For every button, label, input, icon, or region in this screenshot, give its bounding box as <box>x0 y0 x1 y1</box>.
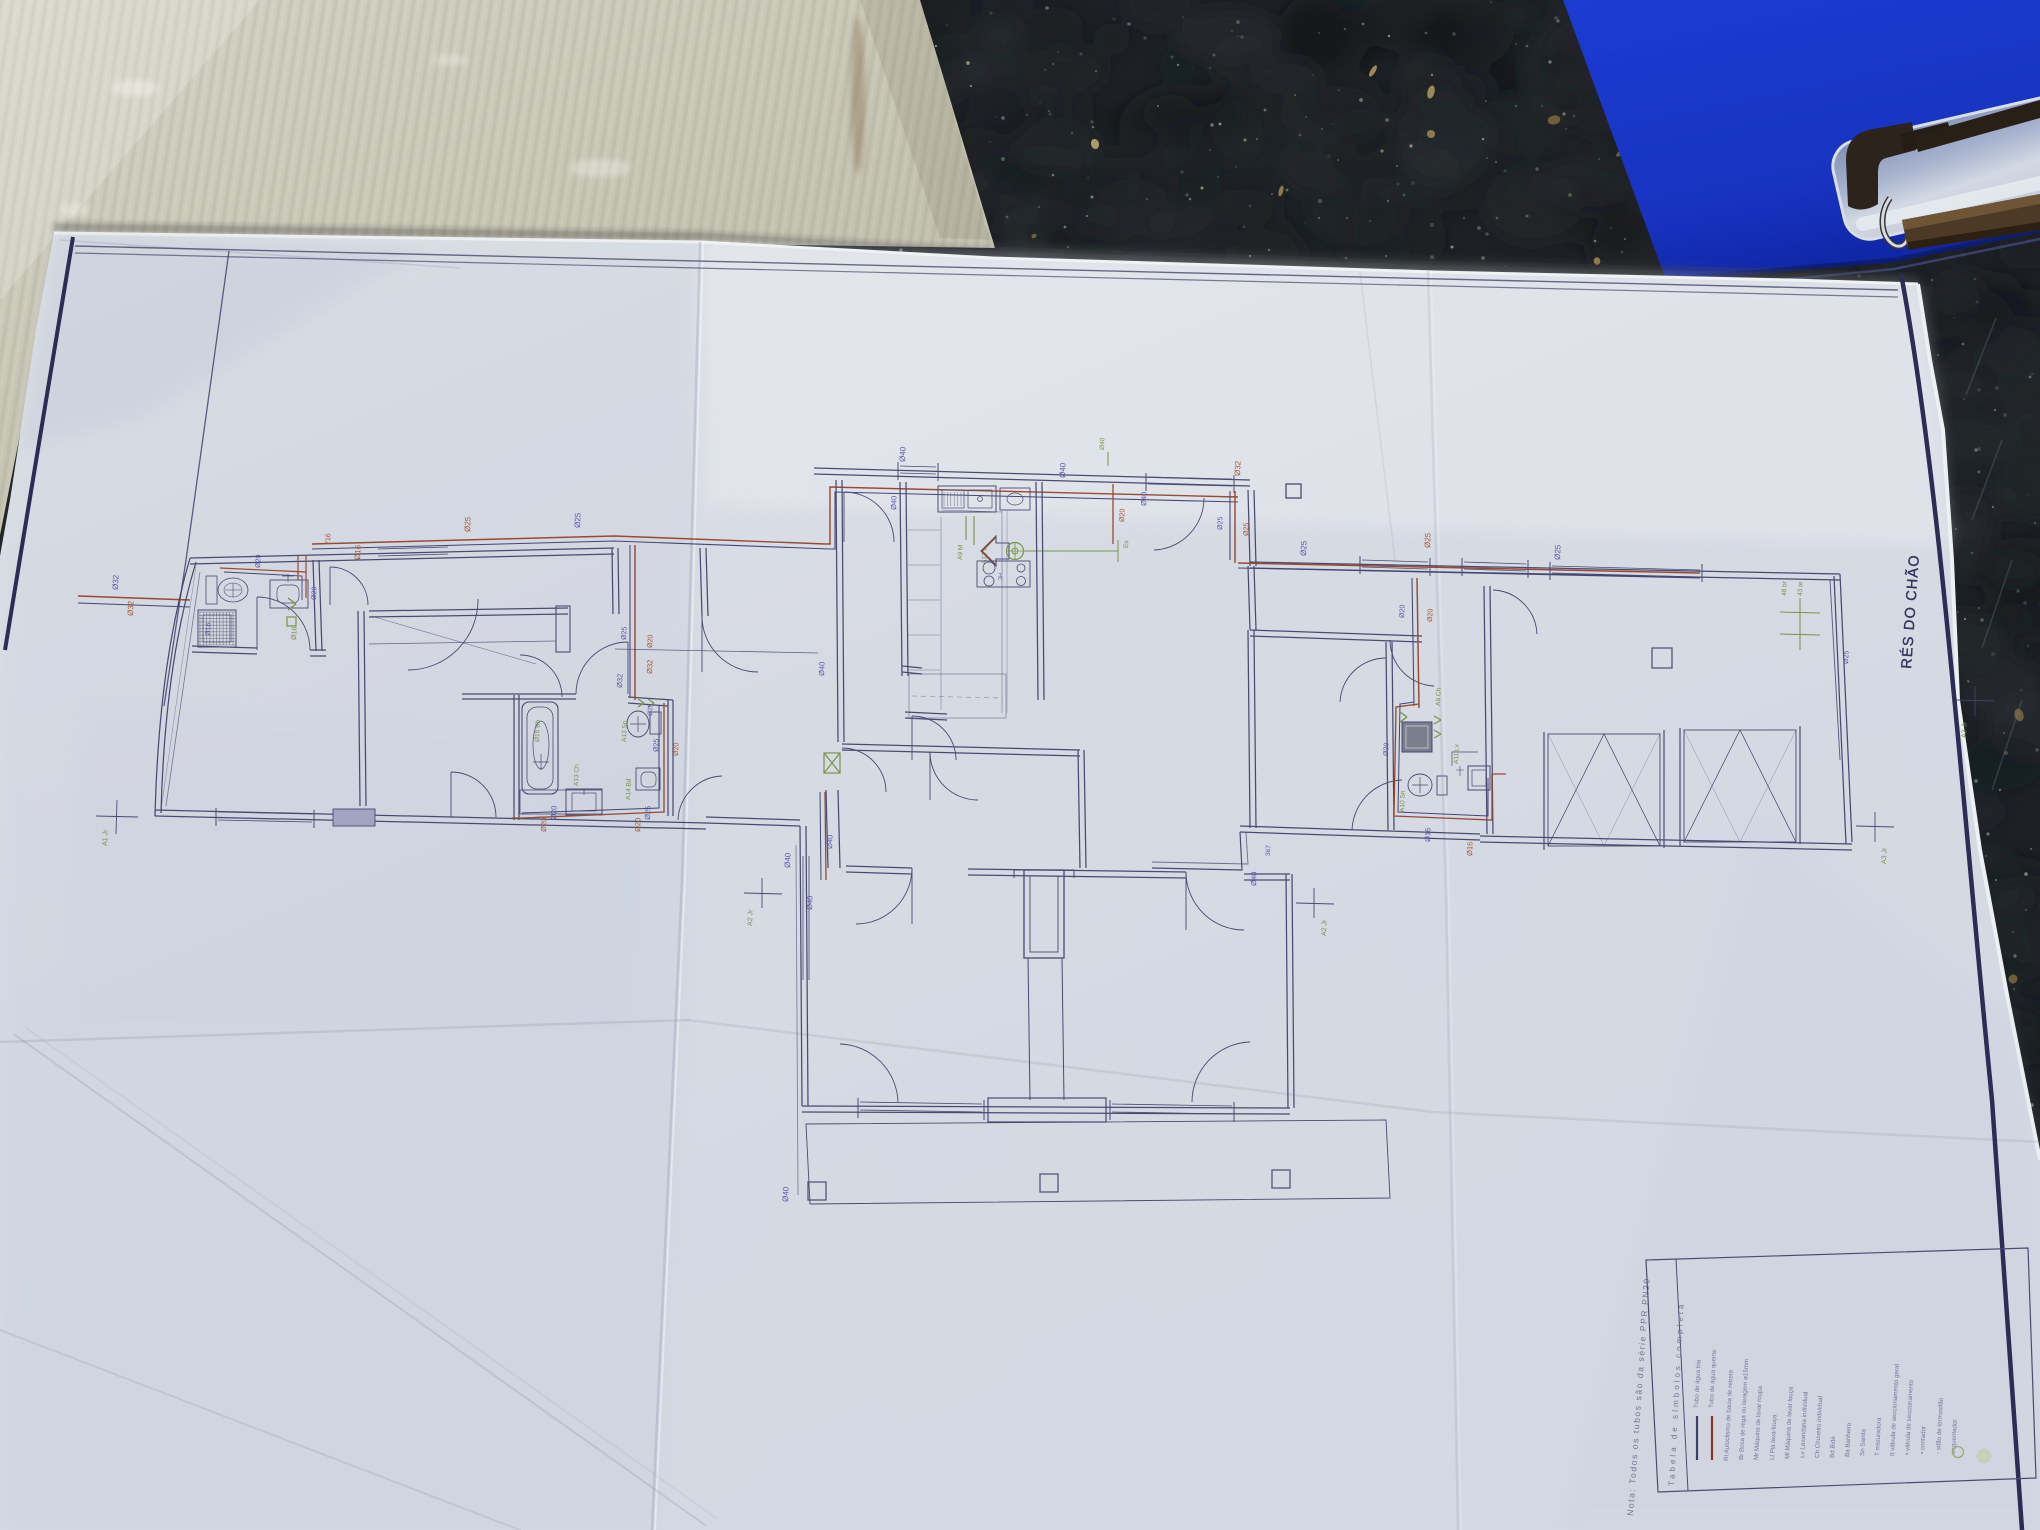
svg-text:Ø32: Ø32 <box>615 674 624 688</box>
svg-text:Ø40: Ø40 <box>805 896 814 910</box>
svg-text:Ø15 Bb: Ø15 Bb <box>534 719 542 742</box>
svg-text:Ø25: Ø25 <box>653 738 660 752</box>
svg-text:Ø20: Ø20 <box>673 742 680 756</box>
svg-text:A9 Ch: A9 Ch <box>1435 687 1443 706</box>
svg-text:48 br: 48 br <box>1781 580 1789 596</box>
svg-text:Ø25: Ø25 <box>1243 522 1250 536</box>
svg-text:Ø40: Ø40 <box>1139 492 1148 506</box>
svg-text:A2 Jr: A2 Jr <box>747 909 755 926</box>
svg-text:Ø20: Ø20 <box>633 818 642 832</box>
svg-text:Ø20: Ø20 <box>539 818 548 832</box>
svg-text:Ø25: Ø25 <box>1217 516 1224 530</box>
svg-text:Ø25: Ø25 <box>1423 532 1433 548</box>
svg-text:Ø20: Ø20 <box>1119 508 1126 522</box>
svg-text:Ø25: Ø25 <box>463 516 473 532</box>
svg-text:Ø25: Ø25 <box>647 703 654 716</box>
svg-text:716: 716 <box>325 533 332 545</box>
svg-text:Ø40: Ø40 <box>1249 872 1258 886</box>
svg-text:Ø40: Ø40 <box>889 496 898 510</box>
svg-text:Es: Es <box>1123 539 1130 548</box>
svg-text:Ø25: Ø25 <box>621 626 628 640</box>
svg-text:Ø40: Ø40 <box>781 1186 791 1202</box>
svg-text:Ø25: Ø25 <box>1299 540 1309 556</box>
svg-text:▪ contador: ▪ contador <box>1919 1426 1927 1454</box>
svg-text:A2 Jr: A2 Jr <box>1961 721 1969 738</box>
svg-text:367: 367 <box>1265 845 1272 856</box>
svg-text:Ø20: Ø20 <box>647 634 654 648</box>
svg-text:3H: 3H <box>998 573 1004 580</box>
svg-text:A13 Ch: A13 Ch <box>573 764 581 786</box>
svg-text:Ø25: Ø25 <box>573 512 583 528</box>
svg-text:Ø20: Ø20 <box>1399 604 1406 618</box>
svg-text:Ø40: Ø40 <box>1099 437 1106 450</box>
svg-text:43 te: 43 te <box>1797 581 1805 596</box>
svg-text:Ø16: Ø16 <box>1423 828 1432 842</box>
svg-text:A2 Jr: A2 Jr <box>1321 919 1329 936</box>
svg-text:Ø20: Ø20 <box>311 586 318 600</box>
svg-text:Ø32: Ø32 <box>1233 460 1243 476</box>
svg-text:Ø25: Ø25 <box>1843 650 1850 664</box>
svg-text:Ø32: Ø32 <box>645 660 654 674</box>
svg-text:Ø20: Ø20 <box>255 554 262 568</box>
svg-text:Ø20: Ø20 <box>549 806 558 820</box>
svg-text:Ø20: Ø20 <box>1383 742 1390 756</box>
svg-text:A10 Sn: A10 Sn <box>1399 790 1407 812</box>
svg-text:Ø32: Ø32 <box>126 600 136 616</box>
svg-text:Ø40: Ø40 <box>783 852 793 868</box>
svg-text:Ø25: Ø25 <box>643 806 652 820</box>
svg-text:A11 Lv: A11 Lv <box>1453 743 1461 764</box>
svg-text:A1 Jr: A1 Jr <box>102 829 110 846</box>
svg-text:Ø16: Ø16 <box>291 626 298 640</box>
svg-text:Ø16: Ø16 <box>353 544 363 560</box>
svg-text:A14 Bd: A14 Bd <box>625 778 633 800</box>
svg-text:Ø32: Ø32 <box>111 574 121 590</box>
svg-text:Sn Sanita: Sn Sanita <box>1859 1428 1867 1456</box>
svg-text:Ø40: Ø40 <box>817 662 826 676</box>
svg-text:Ø16: Ø16 <box>1465 842 1474 856</box>
svg-text:Ø40: Ø40 <box>898 446 908 462</box>
svg-text:Ø25: Ø25 <box>1553 544 1563 560</box>
svg-text:Ø20: Ø20 <box>1427 608 1434 622</box>
svg-text:Ø40: Ø40 <box>825 835 834 849</box>
svg-text:A9 M: A9 M <box>957 545 965 560</box>
svg-text:A3 Jr: A3 Jr <box>1881 847 1889 864</box>
svg-text:Ø40: Ø40 <box>1058 462 1068 478</box>
svg-text:A13 Sn: A13 Sn <box>621 720 629 742</box>
svg-text:Ø16: Ø16 <box>205 622 212 636</box>
svg-text:Bd Bidé: Bd Bidé <box>1829 1436 1837 1459</box>
